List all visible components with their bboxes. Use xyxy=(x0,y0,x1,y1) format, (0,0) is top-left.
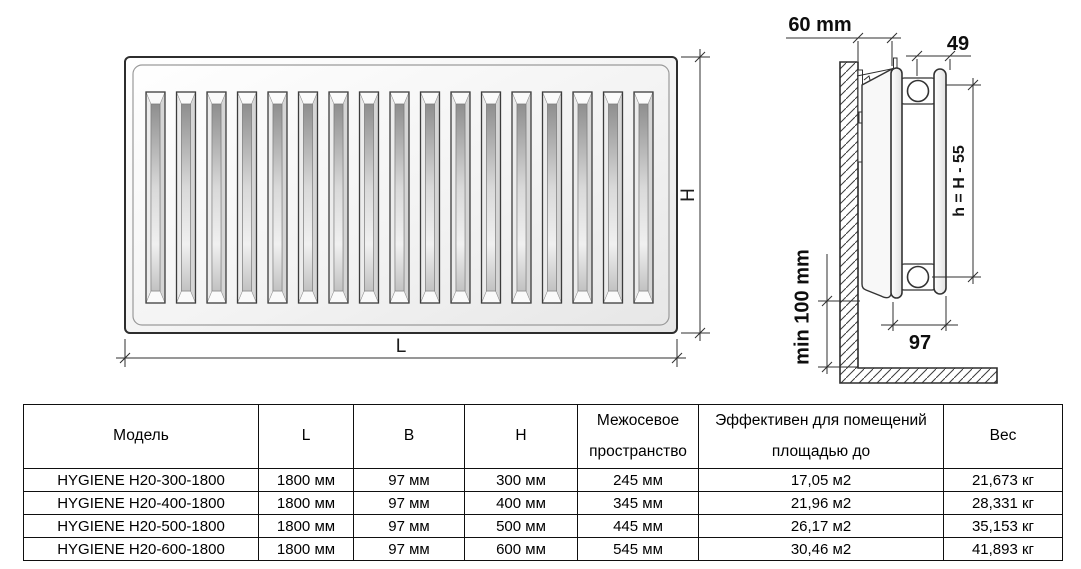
slat xyxy=(299,92,318,303)
table-cell: 35,153 кг xyxy=(944,515,1063,538)
spec-table: Модель L B H Межосевое пространство Эффе… xyxy=(23,404,1063,561)
header-length: L xyxy=(259,405,354,469)
rear-tube xyxy=(891,68,902,298)
slat xyxy=(390,92,409,303)
table-cell: 17,05 м2 xyxy=(699,469,944,492)
axis-height-label: h = H - 55 xyxy=(951,145,968,217)
table-row: HYGIENE H20-300-18001800 мм97 мм300 мм24… xyxy=(24,469,1063,492)
slat xyxy=(207,92,226,303)
technical-drawing: H L xyxy=(0,0,1081,400)
table-cell: HYGIENE H20-600-1800 xyxy=(24,538,259,561)
slat xyxy=(268,92,287,303)
dimension-length-L: L xyxy=(116,336,686,367)
table-cell: 26,17 м2 xyxy=(699,515,944,538)
table-cell: 97 мм xyxy=(354,492,465,515)
table-cell: 1800 мм xyxy=(259,492,354,515)
spec-table-header: Модель L B H Межосевое пространство Эффе… xyxy=(24,405,1063,469)
table-cell: 445 мм xyxy=(578,515,699,538)
slat xyxy=(512,92,531,303)
length-label: L xyxy=(396,336,407,357)
slat xyxy=(543,92,562,303)
table-cell: HYGIENE H20-300-1800 xyxy=(24,469,259,492)
table-cell: 1800 мм xyxy=(259,538,354,561)
table-cell: 21,673 кг xyxy=(944,469,1063,492)
slat xyxy=(421,92,440,303)
slat xyxy=(604,92,623,303)
side-view: 60 mm 49 xyxy=(786,14,997,383)
slat xyxy=(360,92,379,303)
height-label: H xyxy=(678,188,699,202)
slat xyxy=(146,92,165,303)
top-nipple-circle xyxy=(908,81,929,102)
table-row: HYGIENE H20-600-18001800 мм97 мм600 мм54… xyxy=(24,538,1063,561)
table-cell: 500 мм xyxy=(465,515,578,538)
wall-offset-label: 60 mm xyxy=(788,14,851,36)
depth-label: 97 xyxy=(909,332,931,354)
bottom-nipple-circle xyxy=(908,267,929,288)
top-width-label: 49 xyxy=(947,33,969,55)
slat xyxy=(482,92,501,303)
table-cell: 30,46 м2 xyxy=(699,538,944,561)
table-cell: 245 мм xyxy=(578,469,699,492)
table-cell: 21,96 м2 xyxy=(699,492,944,515)
radiator-back-plate xyxy=(862,69,892,298)
dimension-depth: 97 xyxy=(881,296,958,354)
header-effective-area: Эффективен для помещений площадью до xyxy=(699,405,944,469)
radiator-spec-sheet: H L xyxy=(0,0,1081,569)
table-row: HYGIENE H20-500-18001800 мм97 мм500 мм44… xyxy=(24,515,1063,538)
radiator-slats xyxy=(146,92,653,303)
header-depth: B xyxy=(354,405,465,469)
table-cell: 545 мм xyxy=(578,538,699,561)
header-weight: Вес xyxy=(944,405,1063,469)
table-cell: 1800 мм xyxy=(259,515,354,538)
table-cell: 97 мм xyxy=(354,515,465,538)
slat xyxy=(451,92,470,303)
table-cell: 345 мм xyxy=(578,492,699,515)
table-cell: 600 мм xyxy=(465,538,578,561)
spec-table-body: HYGIENE H20-300-18001800 мм97 мм300 мм24… xyxy=(24,469,1063,561)
front-view: H L xyxy=(116,49,710,367)
table-cell: 97 мм xyxy=(354,538,465,561)
table-cell: HYGIENE H20-500-1800 xyxy=(24,515,259,538)
table-cell: 400 мм xyxy=(465,492,578,515)
slat xyxy=(634,92,653,303)
header-height: H xyxy=(465,405,578,469)
table-cell: 300 мм xyxy=(465,469,578,492)
table-cell: 28,331 кг xyxy=(944,492,1063,515)
table-cell: 1800 мм xyxy=(259,469,354,492)
slat xyxy=(177,92,196,303)
front-tube xyxy=(934,69,946,294)
table-cell: HYGIENE H20-400-1800 xyxy=(24,492,259,515)
slat xyxy=(329,92,348,303)
table-row: HYGIENE H20-400-18001800 мм97 мм400 мм34… xyxy=(24,492,1063,515)
floor-clearance-label: min 100 mm xyxy=(791,249,813,365)
dimension-height-H: H xyxy=(678,49,710,341)
slat xyxy=(573,92,592,303)
header-axis-spacing: Межосевое пространство xyxy=(578,405,699,469)
table-cell: 97 мм xyxy=(354,469,465,492)
table-cell: 41,893 кг xyxy=(944,538,1063,561)
header-model: Модель xyxy=(24,405,259,469)
slat xyxy=(238,92,257,303)
dimension-wall-offset: 60 mm xyxy=(786,14,901,66)
